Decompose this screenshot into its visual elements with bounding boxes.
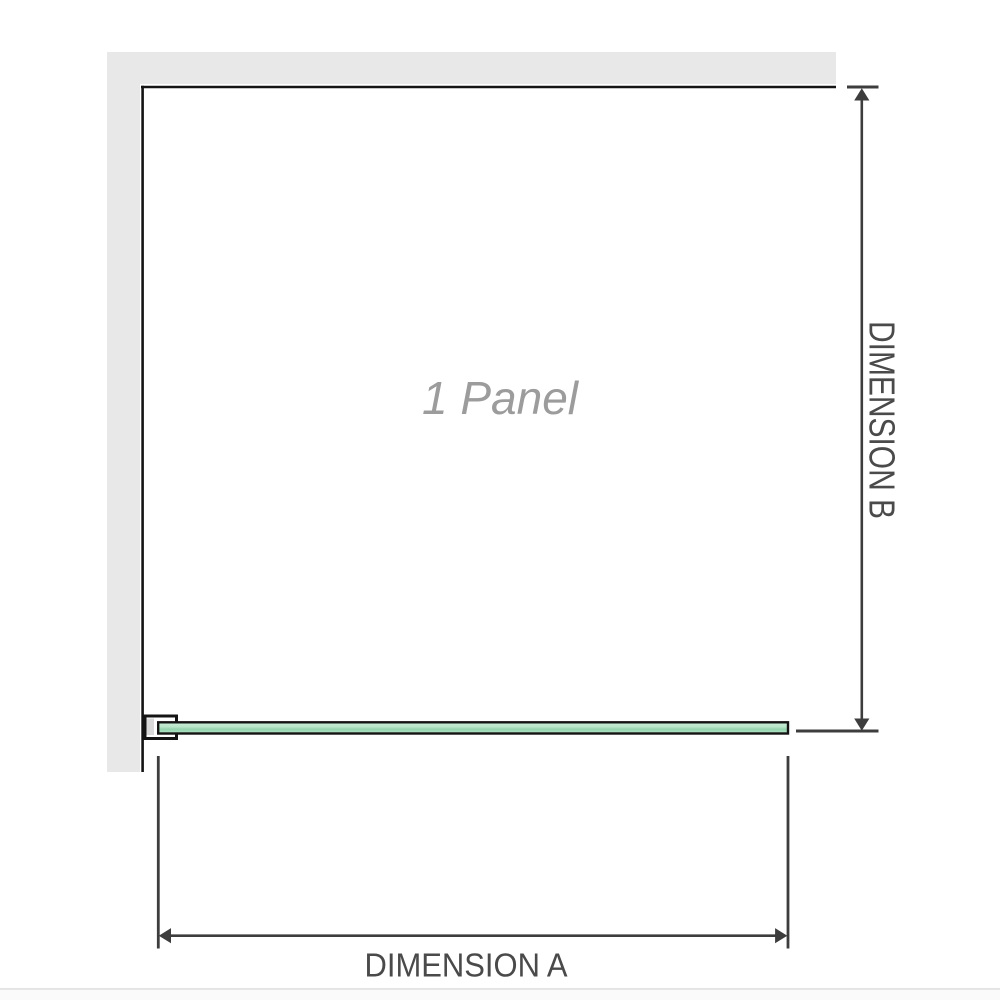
svg-text:DIMENSION A: DIMENSION A [365, 948, 569, 985]
svg-text:DIMENSION B: DIMENSION B [862, 321, 903, 519]
svg-text:1 Panel: 1 Panel [422, 372, 580, 424]
